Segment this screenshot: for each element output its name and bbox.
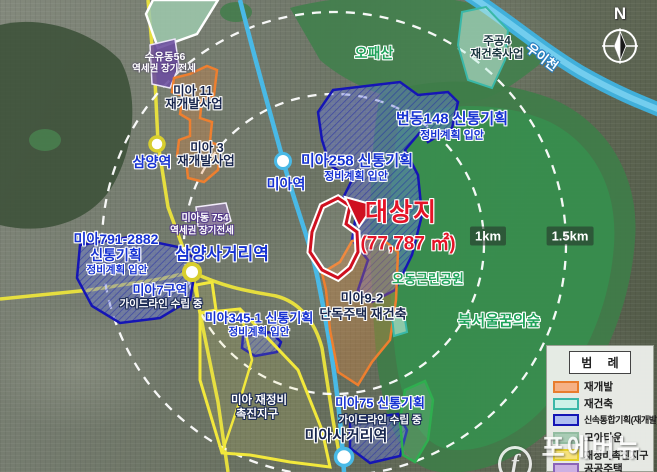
label-mia-renewal-line1: 미아 재정비 bbox=[231, 395, 287, 407]
label-mia92-line2: 단독주택 재건축 bbox=[319, 308, 406, 321]
label-samyang-sageori-station: 삼양사거리역 bbox=[175, 246, 269, 263]
legend-item-reconstruction: 재건축 bbox=[553, 396, 613, 411]
label-mia345-line2: 정비계획 입안 bbox=[229, 327, 290, 338]
label-jugong4-line1: 주공4 bbox=[483, 36, 511, 48]
label-odong-park: 오동근린공원 bbox=[392, 273, 464, 286]
label-mia3-line2: 재개발사업 bbox=[177, 155, 235, 168]
label-mia791-line1: 미아791-2882 bbox=[74, 232, 159, 246]
label-jugong4-line2: 재건축사업 bbox=[471, 49, 524, 61]
mia-station-marker bbox=[276, 154, 291, 169]
label-mia-renewal-line2: 촉진지구 bbox=[236, 409, 278, 421]
legend-label-reconstruction: 재건축 bbox=[584, 396, 613, 411]
legend-item-redevelopment: 재개발 bbox=[553, 379, 613, 394]
label-mia258-line1: 미아258 신통기획 bbox=[301, 154, 413, 169]
legend-item-fast-track: 신속통합기획(재개발) bbox=[553, 413, 657, 426]
label-target-site-title: 대상지 bbox=[365, 201, 437, 226]
label-mia3-line1: 미아 3 bbox=[190, 142, 223, 155]
map-satellite-view: 수유동56 역세권 장기전세 미아동 754 역세권 장기전세 미아 11 재개… bbox=[0, 0, 657, 472]
legend-label-redevelopment: 재개발 bbox=[584, 379, 613, 394]
samyang-sageori-station-marker bbox=[184, 264, 200, 280]
watermark-logo-icon: f bbox=[498, 446, 532, 472]
label-mia791-line2: 신통기획 bbox=[90, 248, 142, 262]
label-samyang-station: 삼양역 bbox=[133, 155, 172, 169]
label-miadong754-line2: 역세권 장기전세 bbox=[170, 226, 234, 236]
label-miadong754-line1: 미아동 754 bbox=[181, 214, 228, 224]
legend-swatch-reconstruction bbox=[553, 398, 579, 410]
label-opaesan: 오패산 bbox=[355, 46, 394, 60]
park-patch-small bbox=[220, 2, 252, 22]
samyang-station-marker bbox=[150, 137, 164, 151]
compass-north: N bbox=[596, 4, 644, 73]
watermark-text: 포에버뉴스 bbox=[542, 428, 657, 472]
label-mia345-line1: 미아345-1 신통기획 bbox=[205, 312, 314, 325]
zone-moatown-top bbox=[146, 0, 218, 48]
label-mia791-line3: 정비계획 입안 bbox=[87, 265, 148, 276]
scale-badge-1km: 1km bbox=[470, 227, 506, 246]
label-mia-sageori-station: 미아사거리역 bbox=[305, 429, 388, 444]
compass-rose-icon bbox=[596, 24, 644, 68]
label-mia75-line2: 가이드라인 수립 중 bbox=[338, 415, 421, 426]
label-beondong148-line2: 정비계획 입안 bbox=[420, 131, 484, 142]
label-mia-station: 미아역 bbox=[267, 177, 306, 191]
label-mia92-line1: 미아9-2 bbox=[341, 292, 384, 305]
scale-badge-1-5km: 1.5km bbox=[547, 227, 594, 246]
park-patch-small-2 bbox=[29, 129, 61, 151]
label-mia11-line1: 미아 11 bbox=[173, 85, 213, 98]
legend-title: 범 례 bbox=[569, 351, 631, 374]
legend-swatch-fast-track bbox=[553, 414, 579, 426]
forest-west-hill bbox=[0, 22, 132, 229]
label-suyu56-line1: 수유동56 bbox=[145, 52, 186, 63]
label-mia7-line1: 미아7구역 bbox=[132, 284, 187, 297]
label-target-site-area: (77,787 ㎡) bbox=[360, 235, 455, 254]
legend-label-fast-track: 신속통합기획(재개발) bbox=[584, 413, 657, 426]
legend-swatch-redevelopment bbox=[553, 381, 579, 393]
label-bukseoul-forest: 북서울꿈의숲 bbox=[458, 314, 541, 329]
label-mia258-line2: 정비계획 입안 bbox=[324, 172, 388, 183]
label-mia7-line2: 가이드라인 수립 중 bbox=[119, 299, 202, 310]
label-suyu56-line2: 역세권 장기전세 bbox=[132, 64, 196, 74]
mia-sageori-station-marker bbox=[336, 449, 353, 466]
label-mia75-line1: 미아75 신통기획 bbox=[335, 397, 425, 410]
compass-north-letter: N bbox=[596, 4, 644, 24]
label-beondong148-line1: 번동148 신통기획 bbox=[396, 112, 508, 127]
label-mia11-line2: 재개발사업 bbox=[165, 98, 223, 111]
watermark: f 포에버뉴스 bbox=[498, 428, 657, 472]
